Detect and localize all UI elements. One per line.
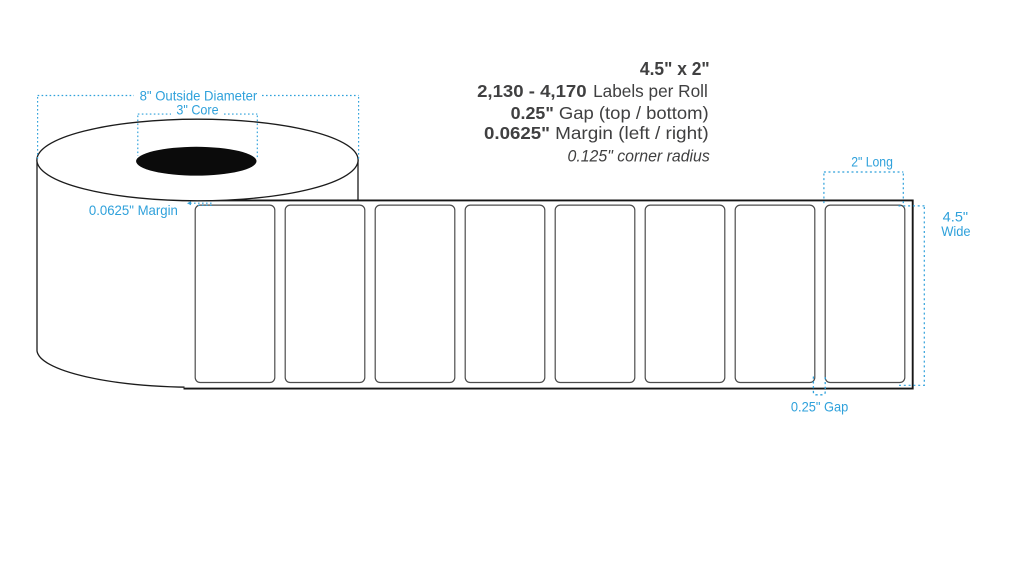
svg-text:4.5" x 2": 4.5" x 2" — [640, 59, 710, 79]
svg-text:0.0625": 0.0625" — [484, 123, 550, 143]
svg-text:0.125" corner radius: 0.125" corner radius — [568, 147, 710, 166]
svg-text:Gap (top / bottom): Gap (top / bottom) — [559, 103, 709, 123]
svg-text:Labels per Roll: Labels per Roll — [593, 81, 708, 101]
svg-text:2" Long: 2" Long — [851, 153, 893, 169]
svg-text:0.0625" Margin: 0.0625" Margin — [89, 202, 178, 218]
svg-text:0.25": 0.25" — [511, 103, 554, 123]
svg-text:Wide: Wide — [941, 223, 971, 239]
svg-text:3" Core: 3" Core — [176, 102, 218, 118]
svg-text:0.25" Gap: 0.25" Gap — [791, 399, 849, 415]
svg-text:2,130 - 4,170: 2,130 - 4,170 — [477, 81, 586, 101]
svg-text:Margin (left / right): Margin (left / right) — [555, 123, 709, 143]
